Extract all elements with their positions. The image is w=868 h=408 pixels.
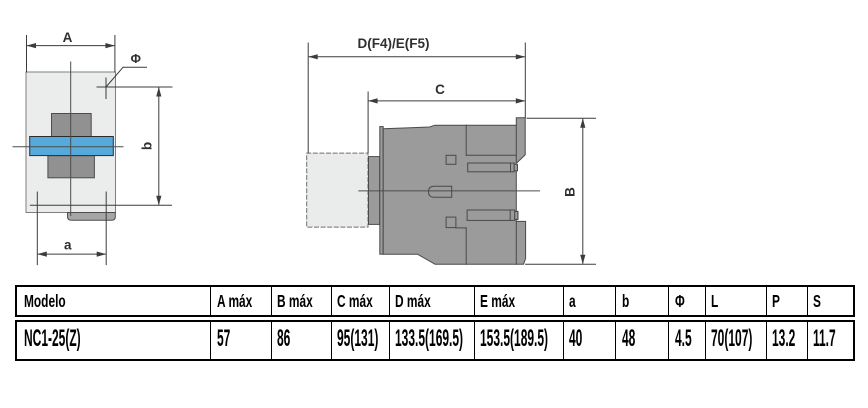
svg-text:B: B xyxy=(563,187,578,197)
svg-text:b: b xyxy=(140,142,155,150)
svg-text:a: a xyxy=(64,238,72,253)
svg-text:Φ: Φ xyxy=(131,52,141,66)
svg-text:D(F4)/E(F5): D(F4)/E(F5) xyxy=(358,36,430,51)
svg-text:C: C xyxy=(435,82,445,97)
svg-text:A: A xyxy=(63,30,73,45)
